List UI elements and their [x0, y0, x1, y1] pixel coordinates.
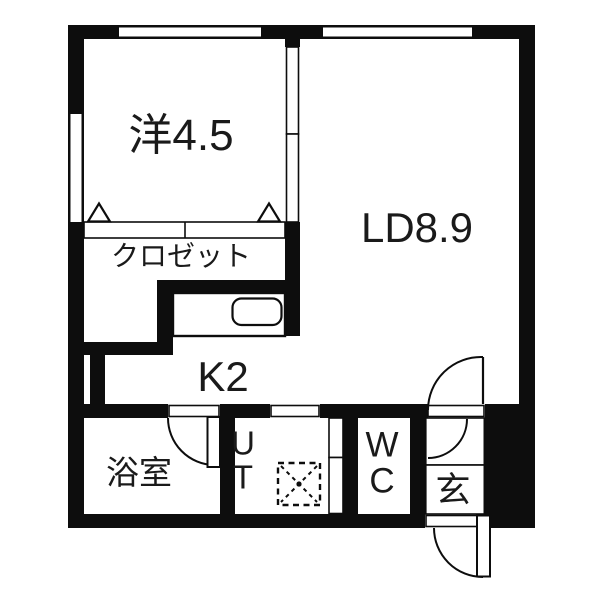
label-toilet: WC — [363, 428, 400, 501]
label-utility: UT — [226, 427, 261, 496]
label-kitchen: K2 — [197, 355, 248, 399]
label-living-dining: LD8.9 — [361, 206, 473, 250]
floor-plan-drawing — [0, 0, 600, 600]
wall-utility-wc — [343, 418, 358, 514]
sliding-panel-upper — [287, 47, 299, 134]
bathroom-door — [168, 417, 220, 467]
bathroom-door-leaf — [208, 417, 221, 467]
utility-threshold — [271, 406, 319, 417]
wall-corner-mass — [485, 404, 535, 528]
wall-closet-bottom — [157, 280, 300, 293]
washer-center-dot — [296, 481, 301, 486]
window-top-right — [322, 27, 473, 38]
sink — [233, 299, 282, 326]
living-door-threshold — [428, 406, 484, 417]
front-door-leaf — [477, 516, 490, 577]
closet-door — [84, 204, 285, 239]
sliding-panel-lower — [287, 134, 299, 222]
wc-sliding-door — [329, 418, 343, 514]
living-door — [428, 357, 483, 410]
floor-plan: 洋4.5 クロゼット LD8.9 K2 浴室 UT WC 玄 — [0, 0, 600, 600]
label-bathroom: 浴室 — [106, 456, 172, 490]
wall-band-b — [220, 404, 270, 418]
wall-pipe-column — [90, 355, 105, 404]
label-closet: クロゼット — [111, 241, 251, 270]
label-entrance: 玄 — [435, 473, 470, 509]
wall-partition-lower — [285, 222, 300, 336]
living-door-arc — [428, 357, 483, 410]
washing-machine-space — [278, 463, 320, 505]
door-swing-triangle-right — [258, 204, 280, 222]
window-top-left — [118, 27, 262, 38]
wall-hall — [84, 342, 173, 355]
label-western-room: 洋4.5 — [128, 113, 233, 159]
kitchen-counter — [173, 293, 285, 336]
wall-band-c — [320, 404, 428, 418]
wall-left — [68, 25, 84, 528]
sliding-partition — [287, 47, 299, 222]
window-left — [70, 113, 83, 223]
bathroom-threshold — [169, 406, 219, 417]
wc-door-panel-upper — [329, 418, 343, 458]
entrance-threshold — [426, 516, 484, 527]
wall-band-a — [84, 404, 168, 418]
front-door-arc — [434, 528, 483, 577]
wall-partition-stub — [285, 39, 300, 47]
wall-wc-entrance — [410, 418, 425, 514]
door-swing-triangle-left — [88, 204, 110, 222]
wc-door-panel-lower — [329, 458, 343, 514]
